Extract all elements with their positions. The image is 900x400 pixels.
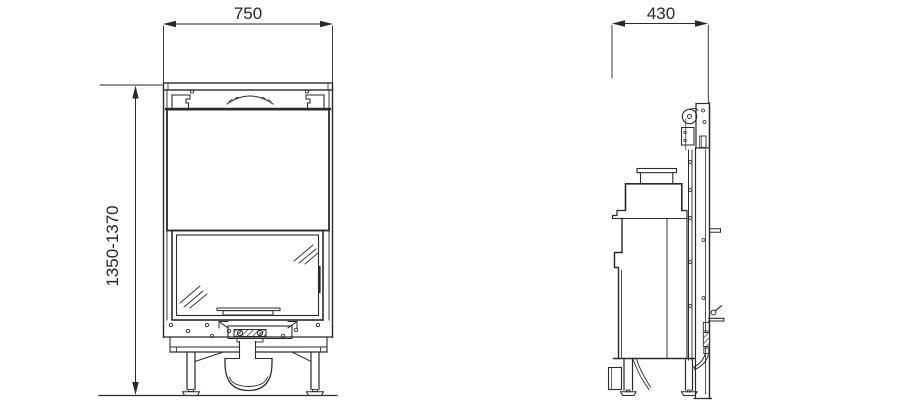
front-width-dimension: 750 — [163, 4, 333, 82]
corner-bracket-left — [172, 95, 190, 110]
front-width-dimension-label: 750 — [234, 4, 262, 23]
glass-pane — [177, 235, 319, 316]
smoke-chamber — [626, 184, 682, 211]
adjustable-foot — [682, 390, 698, 396]
upper-panel — [166, 109, 330, 231]
latch-mechanism — [219, 322, 297, 347]
firebox-body-profile — [613, 211, 694, 390]
side-view: 430 — [609, 4, 724, 399]
door-frame — [172, 231, 323, 321]
door-handle — [217, 308, 280, 315]
technical-drawing: 750 1350-1370 — [0, 0, 900, 400]
header-area — [172, 90, 324, 110]
glass-door — [172, 231, 323, 321]
flue-dome — [227, 96, 273, 104]
adjustable-foot — [621, 390, 637, 396]
pulley-assembly — [682, 104, 710, 151]
side-depth-dimension: 430 — [612, 4, 708, 103]
wall-frame-column — [694, 103, 721, 399]
front-height-dimension-label: 1350-1370 — [103, 205, 122, 286]
side-legs — [621, 359, 698, 396]
front-height-dimension: 1350-1370 — [99, 85, 337, 396]
flue-collar — [637, 169, 677, 184]
pulley-wheel-icon — [682, 109, 696, 123]
glass-hatch-marks — [180, 245, 318, 308]
top-frame-bar — [164, 83, 333, 90]
air-duct — [225, 342, 272, 391]
adjustable-foot — [307, 390, 324, 396]
arrow-up-icon — [132, 86, 138, 99]
side-depth-dimension-label: 430 — [647, 4, 675, 23]
arrow-right-icon — [695, 20, 708, 26]
front-legs — [183, 352, 324, 396]
arrow-left-icon — [163, 21, 176, 27]
arrow-right-icon — [320, 21, 333, 27]
front-view: 750 1350-1370 — [99, 4, 337, 396]
corner-bracket-right — [306, 95, 324, 110]
side-rails — [164, 90, 333, 337]
counterweight-track — [689, 150, 693, 360]
adjustable-foot — [183, 390, 200, 396]
wall-bracket-tab — [710, 229, 721, 232]
arrow-left-icon — [612, 20, 625, 26]
arrow-down-icon — [132, 382, 138, 395]
ash-box — [609, 368, 622, 390]
